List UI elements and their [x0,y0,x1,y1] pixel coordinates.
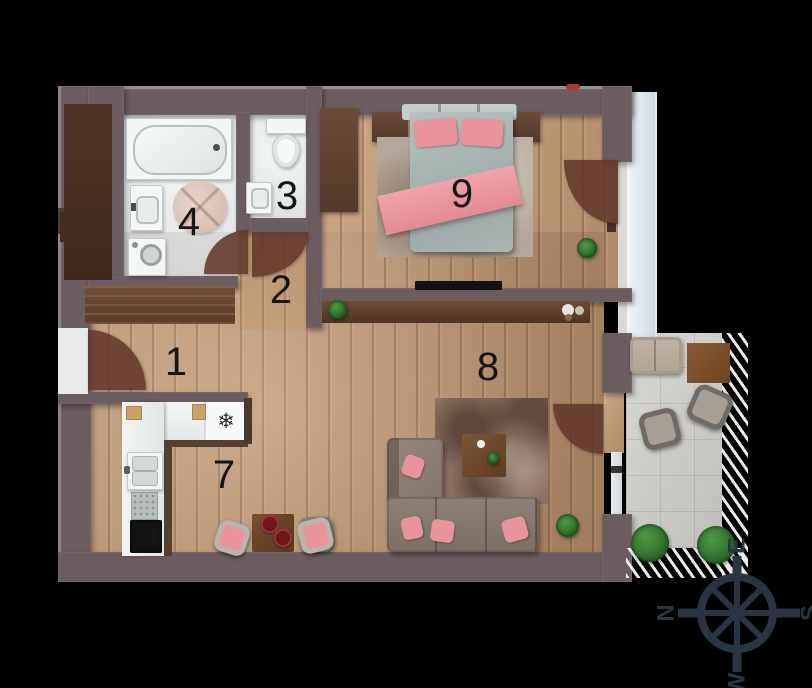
wall-bottom [58,552,632,582]
fridge-cabinet-side [244,398,252,444]
cutting-board [126,406,142,420]
bathtub-basin [133,125,227,175]
sideboard-plant [328,300,347,319]
bedroom-wardrobe [320,108,358,212]
coffee-table-plant [487,452,499,464]
sink-basin [132,471,158,486]
compass-south-label: S [797,605,812,621]
sofa-pillow [400,515,424,541]
wall-red-marker [566,84,580,90]
bed-pillow-left [413,117,458,148]
bathtub-faucet [213,144,220,151]
bed-pillow-right [460,118,504,148]
room-number-7: 7 [213,455,235,495]
balcony-loveseat [630,337,682,374]
kitchen-faucet [124,466,130,474]
entrance-door-frame [58,328,88,394]
bathroom-faucet [131,203,136,211]
stool-cushion [302,522,330,550]
room-number-1: 1 [165,342,187,382]
freezer-icon: ❄ [217,409,235,434]
bedroom-plant [577,238,597,258]
kitchen-counter-left-front [164,440,172,556]
balcony-table [687,343,730,383]
sink-basin [132,456,158,471]
wall-tv [415,281,502,290]
living-room-plant [556,514,579,537]
dinner-plate [274,529,292,547]
bathroom-sink-basin [136,196,159,224]
compass-north-label: N [653,604,680,621]
living-window-handle [611,466,622,473]
cutting-board [192,404,206,420]
sofa-pillow [430,519,456,544]
stool-cushion [218,524,246,552]
built-in-closet-left [64,104,112,280]
compass-rose: E N S W [652,536,812,688]
wall-bedroom-living-divider [320,288,632,302]
washer-dial [132,242,138,248]
compass-east-label: E [724,538,751,554]
tv-sideboard [322,301,590,323]
closet-protrusion [60,212,112,242]
toilet-tank [266,118,306,134]
kitchen-sink [127,452,163,490]
sideboard-decor [565,314,572,321]
room-number-9: 9 [451,174,473,214]
cooktop [130,520,162,553]
wall-bathroom-wc-divider [236,112,250,232]
washer-door [140,244,162,266]
room-number-2: 2 [270,270,292,310]
room-number-3: 3 [276,176,298,216]
sideboard-decor [575,306,584,315]
room-number-8: 8 [477,347,499,387]
wall-bedroom-right [602,86,632,162]
drying-rack [131,492,158,520]
coffee-table-vase [477,440,485,448]
bedroom-window-frame [618,158,627,338]
living-room-window [611,452,622,514]
hallway-wardrobe [85,286,235,324]
room-number-4: 4 [178,202,200,242]
compass-west-label: W [724,672,751,688]
wc-sink-basin [251,188,269,209]
fridge: ❄ [204,402,246,440]
floor-balcony-doorway [604,393,624,453]
wall-wc-bottom [250,218,306,232]
floor-plan: ❄ 1 2 3 4 7 8 9 [0,0,812,688]
wall-living-right-upper [602,333,632,393]
